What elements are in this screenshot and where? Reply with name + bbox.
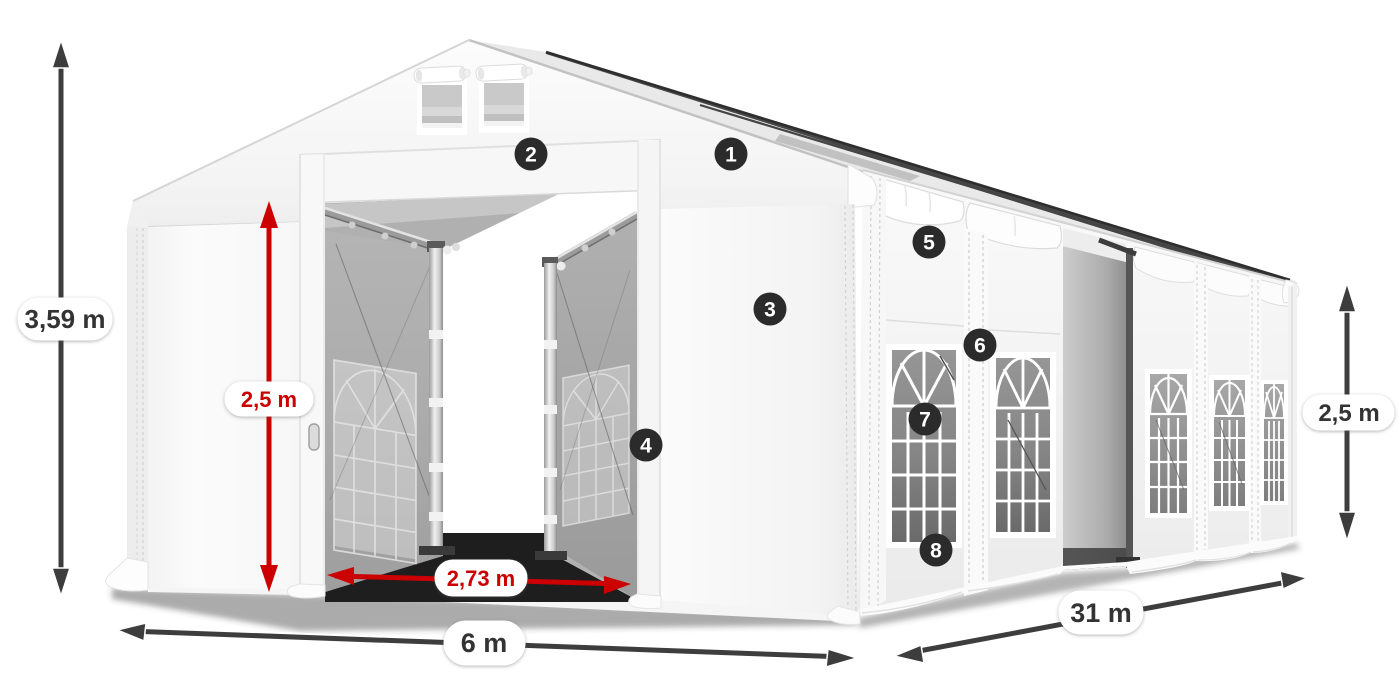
svg-text:3,59 m: 3,59 m xyxy=(25,304,106,334)
svg-text:2,73 m: 2,73 m xyxy=(447,566,516,591)
svg-text:3: 3 xyxy=(764,299,776,322)
svg-text:2: 2 xyxy=(525,144,537,167)
svg-text:2,5 m: 2,5 m xyxy=(241,387,297,412)
svg-text:7: 7 xyxy=(919,409,931,432)
svg-text:6: 6 xyxy=(974,335,986,358)
svg-text:1: 1 xyxy=(725,144,737,167)
svg-text:2,5 m: 2,5 m xyxy=(1318,400,1379,427)
svg-text:5: 5 xyxy=(923,232,935,255)
svg-text:4: 4 xyxy=(640,435,652,458)
svg-text:8: 8 xyxy=(930,540,942,563)
svg-text:31 m: 31 m xyxy=(1070,598,1132,628)
svg-text:6 m: 6 m xyxy=(461,628,508,658)
